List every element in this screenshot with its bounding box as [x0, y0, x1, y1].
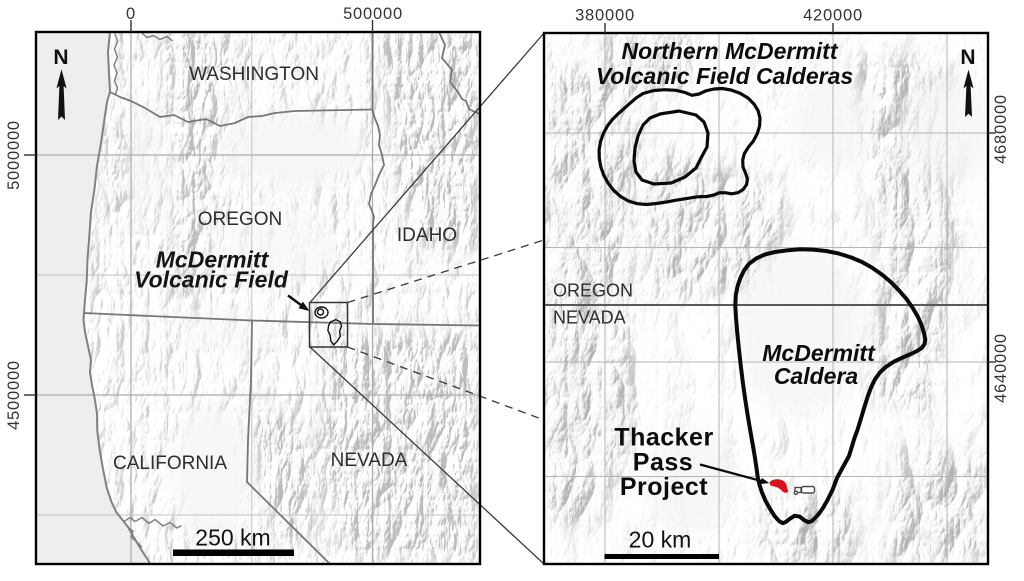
- svg-text:420000: 420000: [803, 7, 863, 25]
- svg-text:Thacker: Thacker: [614, 424, 713, 452]
- svg-text:NEVADA: NEVADA: [331, 450, 408, 471]
- svg-text:Project: Project: [620, 473, 708, 501]
- svg-text:5000000: 5000000: [5, 120, 23, 190]
- svg-text:Northern McDermitt: Northern McDermitt: [622, 38, 839, 64]
- svg-text:250 km: 250 km: [195, 525, 270, 551]
- svg-text:4500000: 4500000: [5, 360, 23, 430]
- svg-text:N: N: [960, 46, 975, 69]
- svg-text:NEVADA: NEVADA: [553, 308, 626, 328]
- svg-text:IDAHO: IDAHO: [397, 225, 457, 246]
- svg-text:0: 0: [126, 5, 136, 23]
- svg-text:20 km: 20 km: [629, 527, 692, 553]
- svg-text:CALIFORNIA: CALIFORNIA: [113, 453, 227, 474]
- svg-text:Caldera: Caldera: [774, 363, 859, 389]
- svg-text:Volcanic Field Calderas: Volcanic Field Calderas: [596, 63, 853, 89]
- svg-text:N: N: [53, 46, 68, 69]
- svg-text:4640000: 4640000: [992, 333, 1010, 403]
- svg-text:4680000: 4680000: [992, 94, 1010, 164]
- svg-text:OREGON: OREGON: [553, 281, 633, 301]
- svg-text:OREGON: OREGON: [198, 209, 282, 230]
- svg-text:500000: 500000: [343, 5, 403, 23]
- svg-text:Volcanic Field: Volcanic Field: [134, 267, 289, 293]
- svg-text:WASHINGTON: WASHINGTON: [189, 64, 319, 85]
- svg-text:380000: 380000: [575, 7, 635, 25]
